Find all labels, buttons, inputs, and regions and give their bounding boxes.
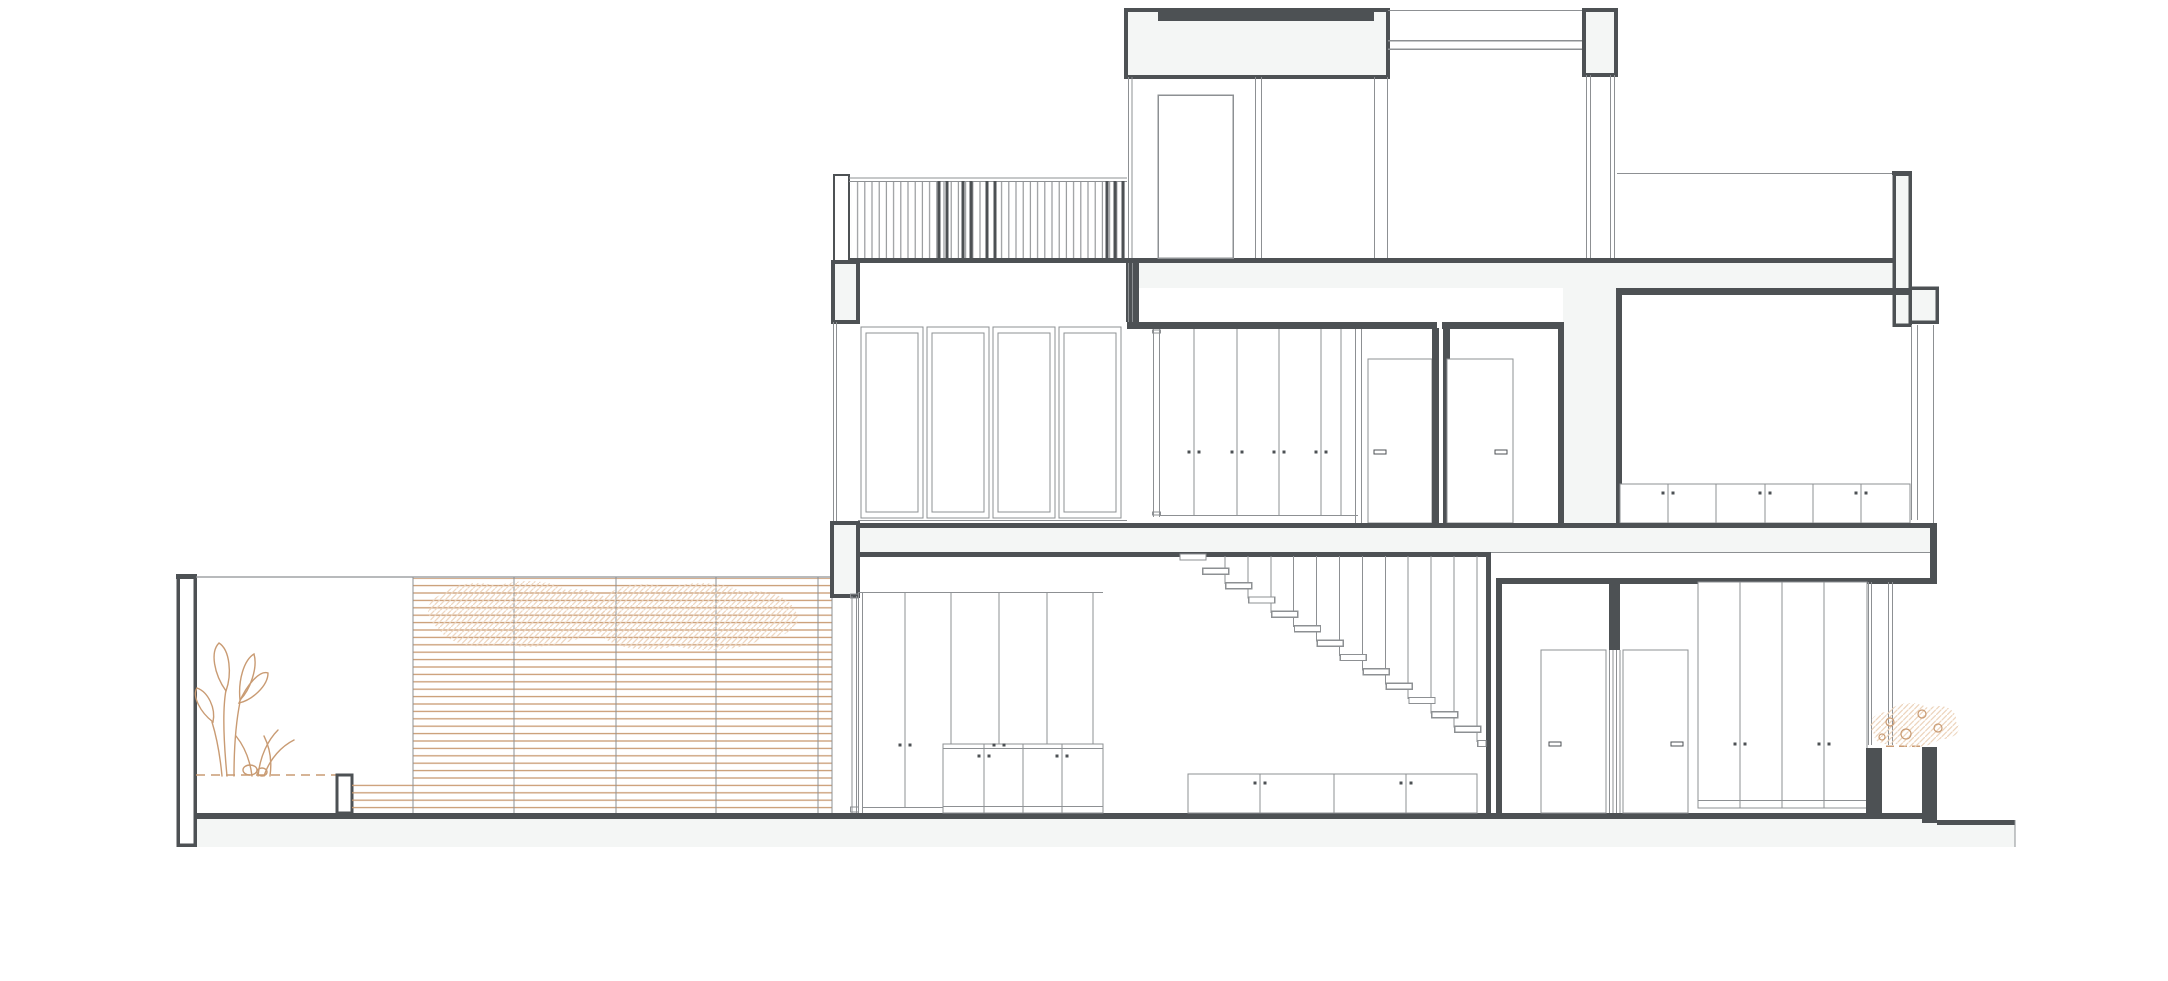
cabinet-handle <box>1400 781 1403 784</box>
cabinet-handle <box>1231 450 1234 453</box>
stair-tread <box>1363 669 1389 675</box>
railing-slat-thick <box>938 181 941 258</box>
cabinet-handle <box>1409 781 1412 784</box>
stair-tread <box>1226 583 1252 589</box>
room-side-wall <box>1496 578 1502 813</box>
ground-slab <box>177 813 2015 847</box>
edge-beam <box>1910 288 1937 322</box>
wardrobe-ground-floor <box>1698 582 1867 808</box>
stair-hall-wall <box>1486 552 1491 813</box>
glazed-panel <box>927 327 989 518</box>
cabinet-handle <box>1734 742 1737 745</box>
cabinet-handle <box>1002 743 1005 746</box>
cabinet-handle <box>978 754 981 757</box>
room-top-wall <box>1616 288 1912 295</box>
railing-slat-thick <box>946 181 949 258</box>
room-top-wall <box>1442 322 1564 329</box>
cabinet-handle <box>899 743 902 746</box>
cabinet-handle <box>1818 742 1821 745</box>
cabinet-handle <box>987 754 990 757</box>
low-cabinets-second-floor <box>1620 484 1910 523</box>
planter-curb <box>1922 747 1937 823</box>
cabinet-handle <box>1827 742 1830 745</box>
cabinet-handle <box>908 743 911 746</box>
stair-tread <box>1432 712 1458 718</box>
planter-curb <box>337 775 352 813</box>
room-door <box>1623 650 1688 813</box>
railing-slat-thick <box>1106 181 1109 258</box>
stair-tread <box>1249 597 1275 603</box>
stair-hall-cabinet <box>1188 774 1477 813</box>
partition-stub <box>1609 578 1620 650</box>
stair-tread <box>1272 611 1298 617</box>
building-section-drawing <box>0 0 2168 981</box>
pergola-column-head <box>1584 10 1616 75</box>
cut-column <box>832 523 858 596</box>
module-gap-shaft <box>1563 288 1616 523</box>
terrace-railing <box>834 175 1127 261</box>
boundary-wall <box>176 574 197 845</box>
cabinet-handle <box>1671 491 1674 494</box>
stair-tread <box>1386 683 1412 689</box>
railing-slats <box>851 181 1127 258</box>
low-timber-deck <box>352 780 413 813</box>
stair-tread <box>1409 698 1435 704</box>
bedroom-door <box>1447 359 1513 523</box>
cabinet-handle <box>1065 754 1068 757</box>
room-side-wall <box>1558 322 1564 523</box>
cabinet-handle <box>1315 450 1318 453</box>
cabinet-handle <box>1743 742 1746 745</box>
sideboard <box>943 744 1103 813</box>
railing-post <box>834 175 849 261</box>
room-top-wall <box>1127 322 1437 329</box>
railing-slat-thick <box>986 181 989 258</box>
stair-tread <box>1180 554 1206 560</box>
cabinet-handle <box>1324 450 1327 453</box>
cabinet-handle <box>1188 450 1191 453</box>
railing-slat-thick <box>970 181 973 258</box>
railing-slat-thick <box>1114 181 1117 258</box>
cut-column <box>833 262 858 322</box>
door-handle <box>1495 450 1507 454</box>
door-handle <box>1671 742 1683 746</box>
bulkhead-door <box>1158 95 1233 258</box>
partition-wall <box>1432 328 1439 523</box>
cabinet-handle <box>1662 491 1665 494</box>
cabinet-handle <box>1056 754 1059 757</box>
stair-tread <box>1317 640 1343 646</box>
glazed-panel <box>993 327 1055 518</box>
planter-curb <box>1866 748 1882 817</box>
railing-slat-thick <box>1122 181 1125 258</box>
room-door <box>1541 650 1606 813</box>
cabinet-handle <box>1240 450 1243 453</box>
bedroom-door <box>1368 359 1432 523</box>
railing-slat-thick <box>994 181 997 258</box>
stair-tread <box>1478 741 1486 747</box>
cabinet-handle <box>1768 491 1771 494</box>
cabinet-handle <box>1273 450 1276 453</box>
section-drawing-sheet <box>0 0 2168 981</box>
cabinet-handle <box>1263 781 1266 784</box>
door-handle <box>1374 450 1386 454</box>
glazed-panel <box>1059 327 1121 518</box>
cabinet-handle <box>1855 491 1858 494</box>
stair-tread <box>1340 654 1366 660</box>
stair-tread <box>1295 626 1321 632</box>
cabinet-handle <box>1197 450 1200 453</box>
parapet-wall <box>1894 174 1910 325</box>
glazed-panel <box>861 327 923 518</box>
bulkhead-roof-recess <box>1158 10 1374 21</box>
cabinet-handle <box>1759 491 1762 494</box>
railing-slat-thick <box>962 181 965 258</box>
stair-tread <box>1455 726 1481 732</box>
exterior-edge-wall <box>1930 528 1937 584</box>
door-handle <box>1549 742 1561 746</box>
cabinet-handle <box>1864 491 1867 494</box>
cabinet-handle <box>1282 450 1285 453</box>
cabinet-handle <box>1254 781 1257 784</box>
cabinet-handle <box>993 743 996 746</box>
stair-tread <box>1203 568 1229 574</box>
